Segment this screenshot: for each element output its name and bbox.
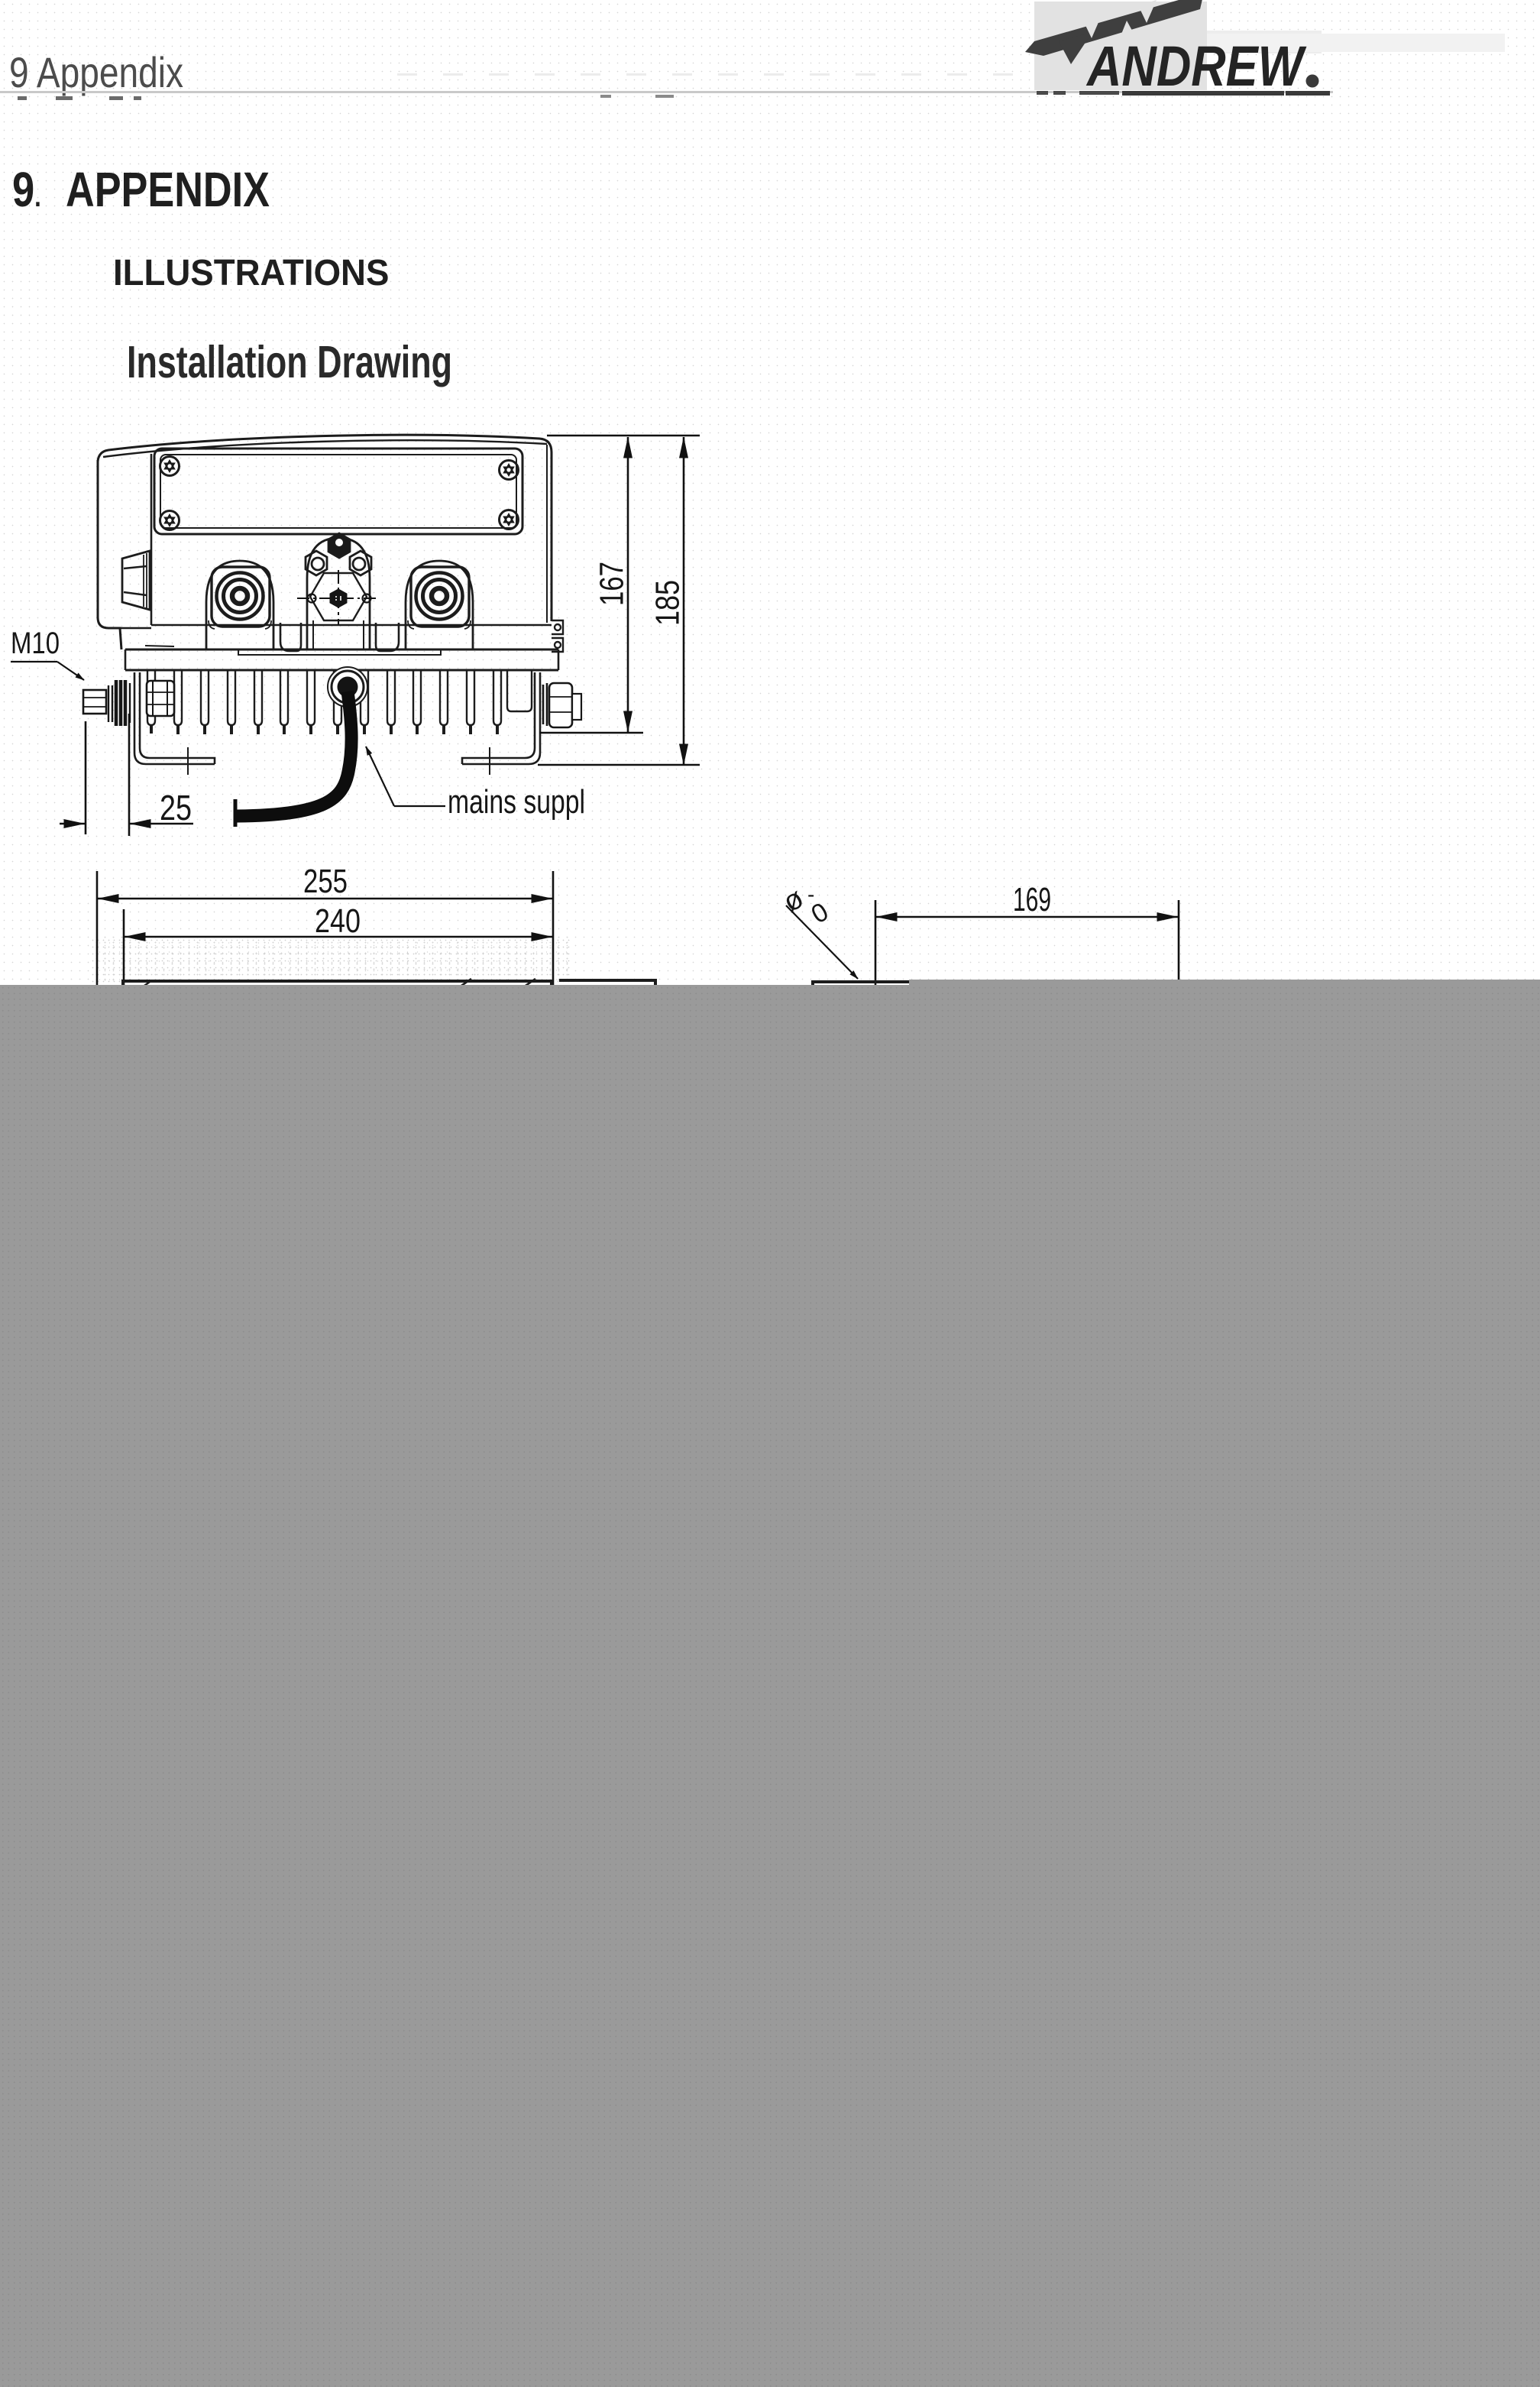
svg-text:25: 25 xyxy=(160,788,192,828)
svg-text:167: 167 xyxy=(594,562,631,606)
svg-text:255: 255 xyxy=(303,863,348,900)
svg-text:mains suppl: mains suppl xyxy=(448,783,585,821)
svg-text:169: 169 xyxy=(1013,881,1051,918)
svg-text:M10: M10 xyxy=(11,627,60,660)
svg-text:0: 0 xyxy=(807,897,833,929)
svg-text:240: 240 xyxy=(315,902,361,940)
svg-text:ANDREW: ANDREW xyxy=(1085,34,1307,98)
svg-text:185: 185 xyxy=(649,580,687,626)
